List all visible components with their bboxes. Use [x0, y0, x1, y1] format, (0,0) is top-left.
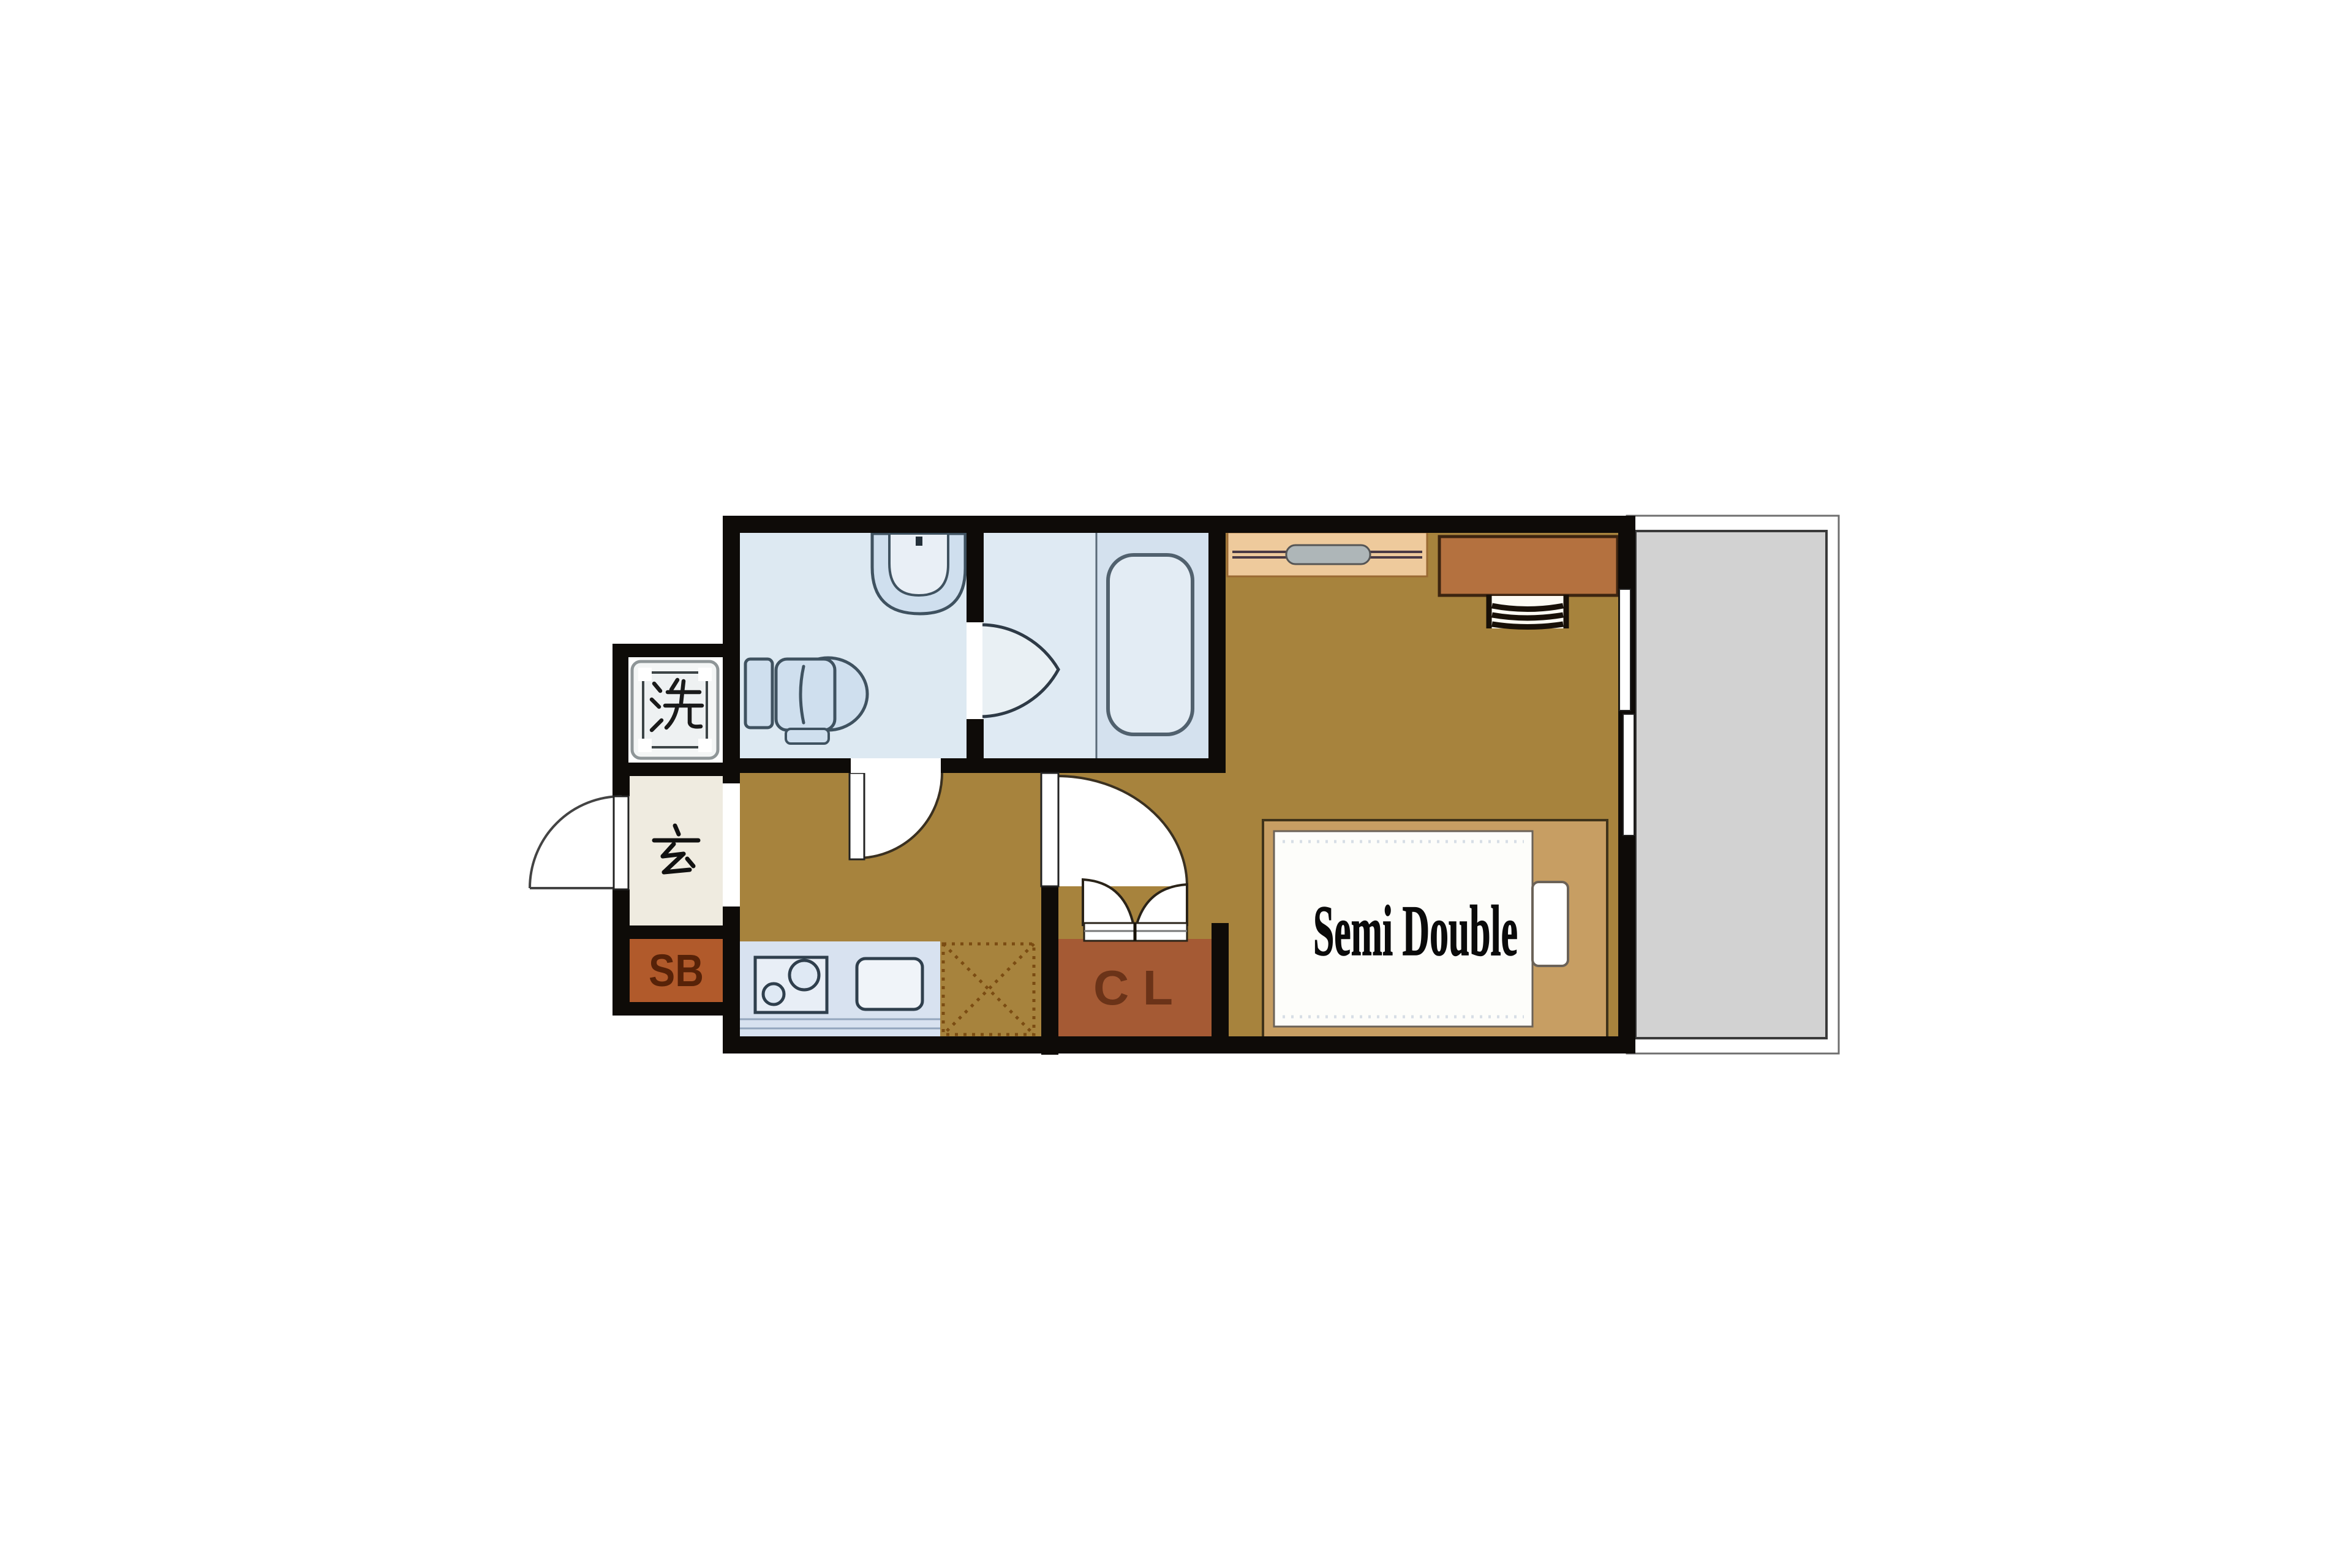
svg-text:C L: C L — [1093, 960, 1173, 1015]
svg-text:SB: SB — [649, 945, 704, 996]
svg-text:Semi Double: Semi Double — [1313, 891, 1518, 971]
